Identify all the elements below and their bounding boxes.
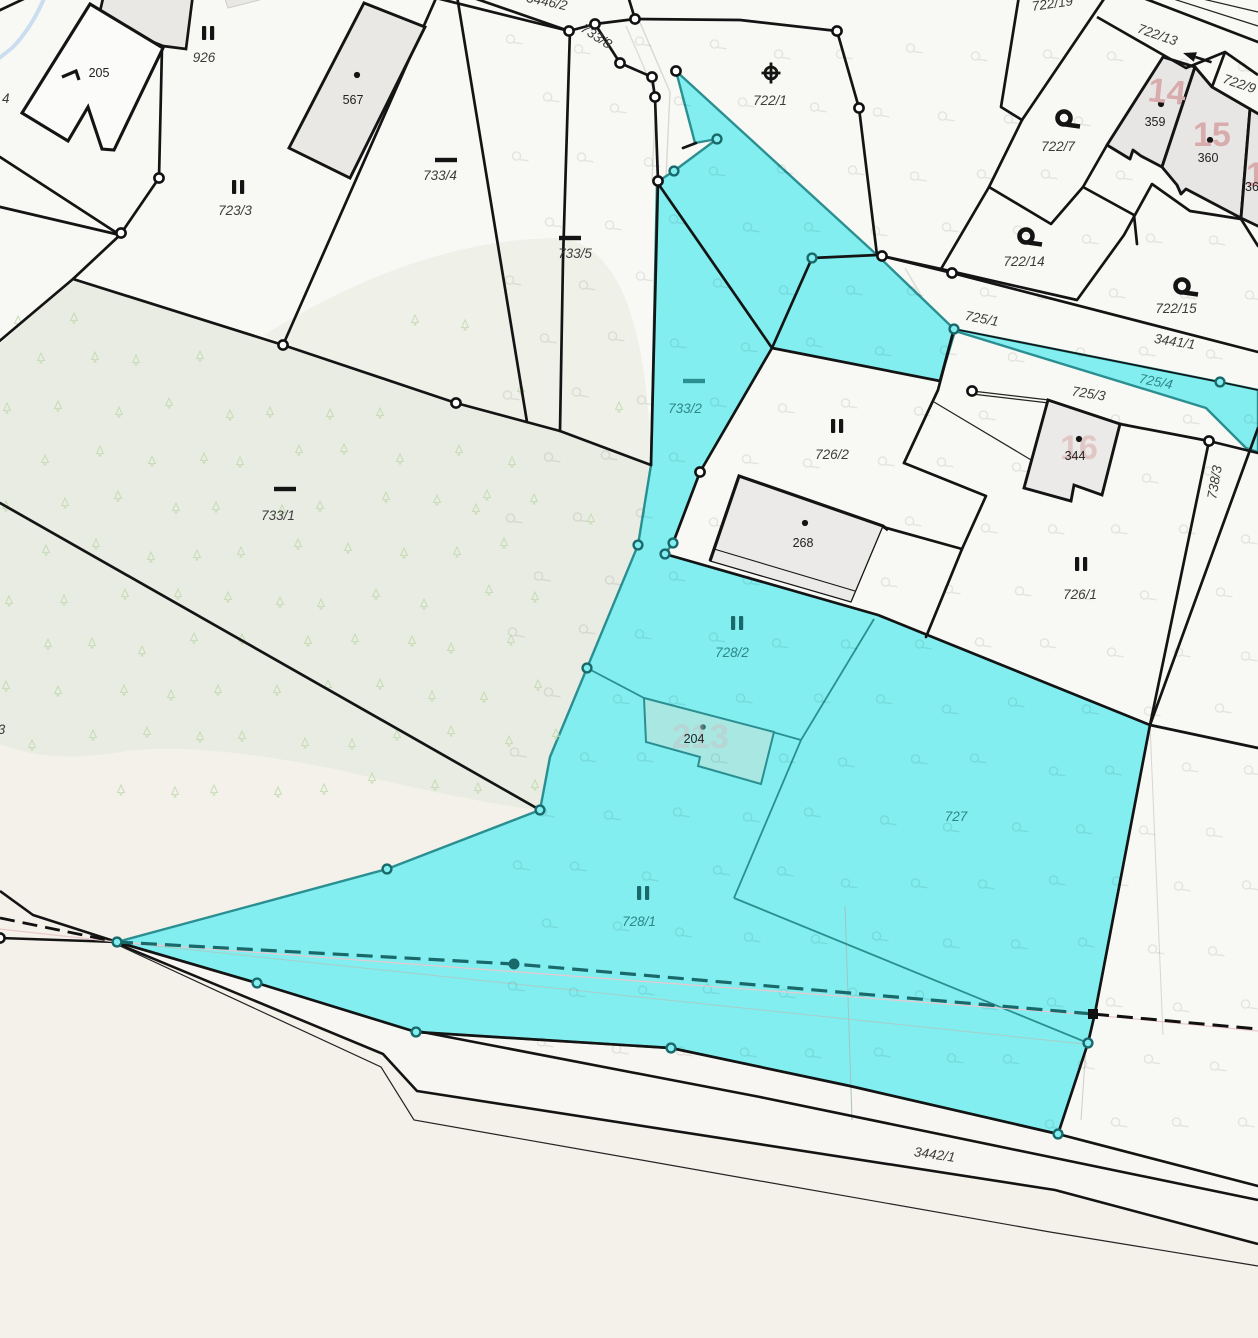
svg-text:/3: /3: [0, 722, 6, 737]
svg-text:722/14: 722/14: [1003, 254, 1044, 269]
svg-text:722/1: 722/1: [753, 93, 787, 108]
svg-text:36: 36: [1245, 180, 1258, 194]
svg-text:204: 204: [684, 732, 705, 746]
svg-text:567: 567: [343, 93, 364, 107]
svg-text:360: 360: [1198, 151, 1219, 165]
svg-text:723/3: 723/3: [218, 203, 252, 218]
svg-text:733/2: 733/2: [668, 401, 702, 416]
svg-text:733/4: 733/4: [423, 168, 457, 183]
svg-text:14: 14: [1146, 71, 1188, 113]
svg-text:733/1: 733/1: [261, 508, 295, 523]
svg-text:722/7: 722/7: [1041, 139, 1075, 154]
svg-text:359: 359: [1145, 115, 1166, 129]
svg-text:4: 4: [2, 91, 10, 106]
svg-text:205: 205: [89, 66, 110, 80]
svg-text:727: 727: [945, 809, 968, 824]
svg-text:268: 268: [793, 536, 814, 550]
svg-text:733/5: 733/5: [558, 246, 592, 261]
svg-text:726/2: 726/2: [815, 447, 849, 462]
svg-text:722/15: 722/15: [1155, 301, 1197, 316]
svg-text:344: 344: [1065, 449, 1086, 463]
svg-text:728/1: 728/1: [622, 914, 656, 929]
svg-text:728/2: 728/2: [715, 645, 749, 660]
svg-text:15: 15: [1193, 116, 1231, 154]
svg-text:926: 926: [193, 50, 216, 65]
svg-text:726/1: 726/1: [1063, 587, 1097, 602]
